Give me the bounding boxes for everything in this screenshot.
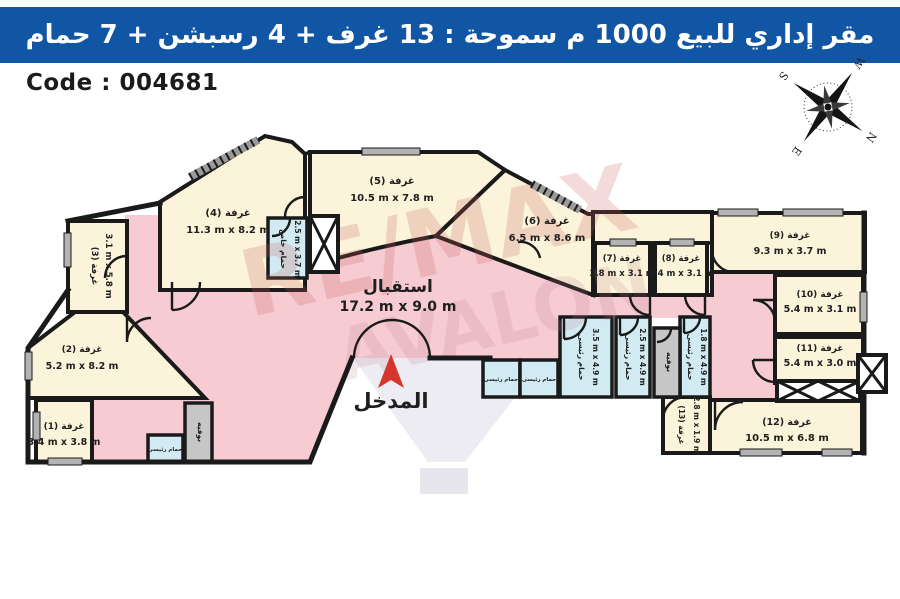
room-1-dims: 3.4 m x 3.8 m [28,437,101,448]
room-11-dims: 5.4 m x 3.0 m [784,358,857,369]
room-5-name: غرفة (5) [369,176,414,187]
compass-s: S [776,69,791,83]
bath-main-1-dims: 3.5 m x 4.9 m [591,328,600,386]
buffet-east-label: بوفيه [665,352,674,372]
reception-name: استقبال [363,277,433,297]
floor-plan: RE/MAX AVALON [0,0,900,599]
bath-pair-a-label: حمام رئيسى [484,377,518,383]
bath-main-3-name: حمام رئيسى [686,334,695,381]
room-3-dims: 3.1 m x 5.8 m [103,233,113,298]
buffet-west-label: بوفيه [196,422,205,442]
reception-dims: 17.2 m x 9.0 m [339,299,456,315]
shaft-x-right-edge [858,355,886,392]
room-8-name: غرفة (8) [662,254,700,264]
room-9-dims: 9.3 m x 3.7 m [754,246,827,257]
room-4-name: غرفة (4) [205,208,250,219]
room-2-dims: 5.2 m x 8.2 m [46,361,119,372]
compass-e: E [789,144,804,158]
compass-n: N [863,129,879,145]
room-9 [712,213,865,272]
room-7-name: غرفة (7) [603,254,641,264]
bath-main-2-dims: 2.5 m x 4.9 m [638,328,647,386]
room-12-name: غرفة (12) [762,417,812,428]
room-2-name: غرفة (2) [62,345,103,355]
compass-w: W [850,54,868,71]
bath-pair-b-label: حمام رئيسى [522,377,556,383]
room-7-dims: 3.8 m x 3.1 m [589,269,654,279]
room-5-dims: 10.5 m x 7.8 m [350,193,434,204]
flyer: مقر إداري للبيع 1000 م سموحة : 13 غرف + … [0,0,900,599]
room-9-name: غرفة (9) [770,231,811,241]
compass-rose: N S E W [745,23,900,188]
room-13-dims: 2.8 m x 1.9 m [692,396,701,454]
bath-main-1-name: حمام رئيسى [577,334,586,381]
bath-west-label: حمام رئيسى [148,447,182,453]
bath-private-name: حمام خاص [279,229,288,269]
room-10-name: غرفة (10) [796,290,843,300]
room-6-dims: 6.5 m x 8.6 m [509,233,586,244]
room-8-dims: 3.4 m x 3.1 m [648,269,713,279]
room-12-dims: 10.5 m x 6.8 m [745,433,829,444]
room-3-name: غرفة (3) [89,247,99,285]
room-13-name: غرفة (13) [677,405,686,444]
room-6-name: غرفة (6) [524,216,569,227]
shaft-x-top [310,216,338,272]
bath-main-3-dims: 1.8 m x 4.9 m [699,328,708,386]
entrance-label: المدخل [353,389,428,413]
stairs-x-right-bottom [777,381,860,401]
room-4-dims: 11.3 m x 8.2 m [186,225,270,236]
bath-main-2-name: حمام رئيسى [624,334,633,381]
room-11-name: غرفة (11) [796,344,843,354]
bath-private-dims: 2.5 m x 3.7 m [293,220,302,278]
room-1-name: غرفة (1) [44,422,85,432]
room-10-dims: 5.4 m x 3.1 m [784,304,857,315]
